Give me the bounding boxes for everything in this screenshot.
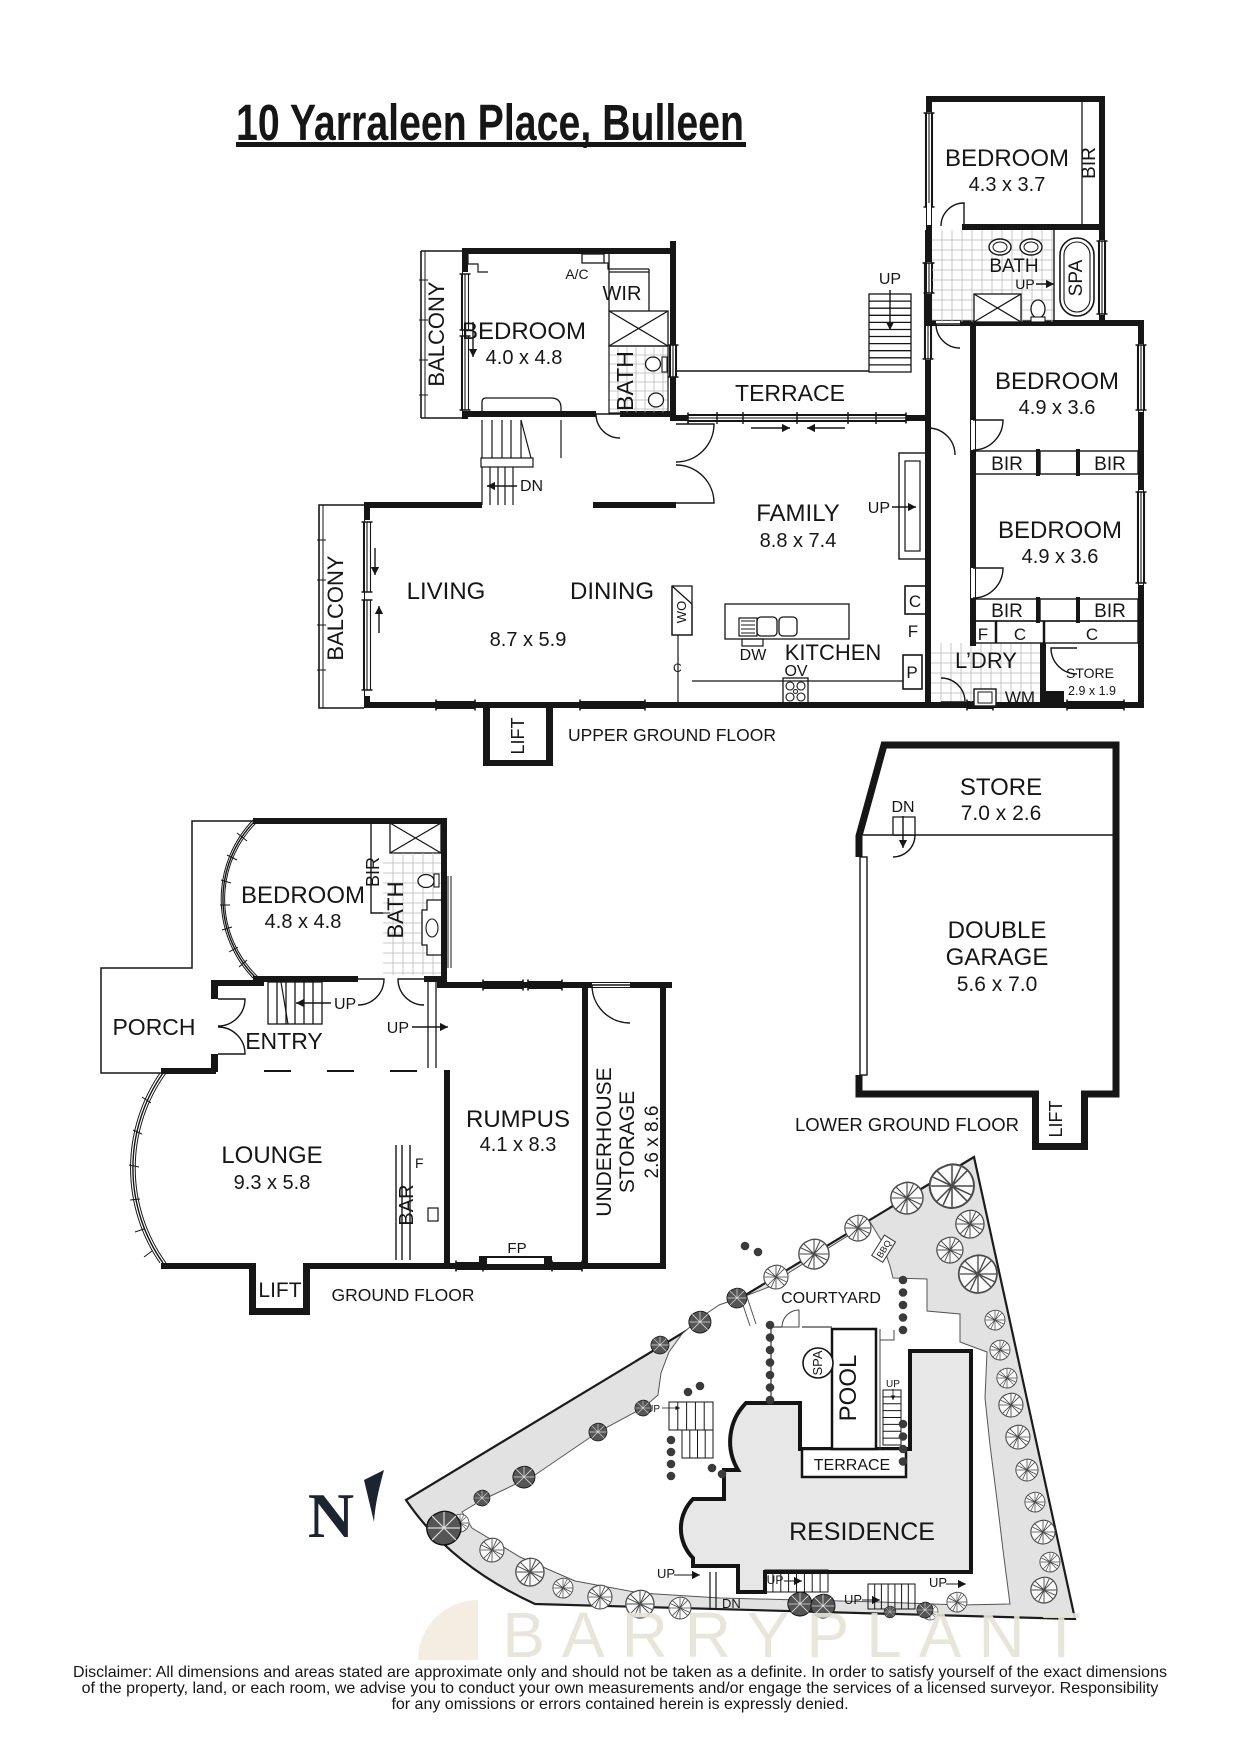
svg-text:BIR: BIR [991, 454, 1023, 475]
svg-text:PORCH: PORCH [112, 1014, 195, 1040]
svg-text:8.7 x 5.9: 8.7 x 5.9 [490, 629, 567, 651]
svg-text:UNDERHOUSE: UNDERHOUSE [593, 1067, 616, 1216]
svg-text:LOUNGE: LOUNGE [221, 1142, 322, 1169]
svg-text:TERRACE: TERRACE [735, 380, 845, 406]
svg-text:RESIDENCE: RESIDENCE [789, 1518, 935, 1546]
svg-text:4.0 x 4.8: 4.0 x 4.8 [486, 347, 563, 369]
svg-text:DN: DN [891, 799, 914, 816]
svg-text:BATH: BATH [989, 256, 1038, 277]
svg-text:BEDROOM: BEDROOM [998, 517, 1122, 544]
svg-text:BALCONY: BALCONY [323, 555, 348, 660]
svg-text:UP: UP [879, 271, 901, 288]
svg-text:Disclaimer: All dimensions and: Disclaimer: All dimensions and areas sta… [73, 1664, 1167, 1681]
svg-text:WIR: WIR [603, 283, 642, 305]
svg-text:C: C [673, 661, 682, 675]
svg-text:RUMPUS: RUMPUS [466, 1106, 570, 1133]
svg-text:UP: UP [1015, 276, 1034, 292]
svg-text:SPA: SPA [810, 1350, 825, 1375]
svg-text:8.8 x 7.4: 8.8 x 7.4 [760, 530, 837, 552]
svg-text:BIR: BIR [1079, 147, 1100, 179]
svg-text:A/C: A/C [565, 266, 588, 282]
svg-text:UP: UP [387, 1020, 409, 1037]
svg-text:for any omissions or errors co: for any omissions or errors contained he… [391, 1696, 848, 1713]
svg-text:DINING: DINING [570, 578, 654, 605]
svg-text:BIR: BIR [1094, 454, 1126, 475]
svg-text:4.1 x 8.3: 4.1 x 8.3 [480, 1134, 557, 1156]
svg-text:WM: WM [1005, 688, 1035, 707]
svg-text:BIR: BIR [991, 601, 1023, 622]
svg-text:STORAGE: STORAGE [616, 1091, 639, 1193]
svg-text:DOUBLE: DOUBLE [948, 917, 1047, 944]
svg-text:4.8 x 4.8: 4.8 x 4.8 [265, 911, 342, 933]
svg-text:LIFT: LIFT [508, 717, 528, 754]
svg-text:STORE: STORE [1066, 665, 1114, 681]
svg-text:UP: UP [657, 1566, 675, 1581]
svg-text:7.0 x 2.6: 7.0 x 2.6 [961, 802, 1042, 825]
svg-text:POOL: POOL [835, 1355, 862, 1422]
svg-text:LIFT: LIFT [258, 1279, 301, 1302]
svg-text:UPPER GROUND FLOOR: UPPER GROUND FLOOR [568, 725, 776, 745]
svg-text:LIFT: LIFT [1046, 1100, 1066, 1137]
svg-text:BATH: BATH [612, 351, 638, 411]
svg-text:TERRACE: TERRACE [814, 1457, 890, 1474]
svg-text:WO: WO [674, 601, 689, 623]
svg-text:LOWER GROUND FLOOR: LOWER GROUND FLOOR [795, 1114, 1019, 1135]
svg-text:FAMILY: FAMILY [756, 500, 840, 527]
svg-text:4.9 x 3.6: 4.9 x 3.6 [1022, 546, 1099, 568]
svg-text:UP: UP [334, 996, 356, 1013]
svg-text:of the property, land, or each: of the property, land, or each room, we … [82, 1680, 1159, 1697]
svg-text:GROUND FLOOR: GROUND FLOOR [332, 1285, 475, 1305]
svg-text:C: C [1086, 625, 1098, 644]
svg-text:LIVING: LIVING [407, 578, 486, 605]
svg-text:C: C [1014, 625, 1026, 644]
svg-text:2.9 x 1.9: 2.9 x 1.9 [1068, 684, 1116, 698]
svg-text:L’DRY: L’DRY [955, 648, 1017, 673]
svg-text:BARRYPLANT: BARRYPLANT [502, 1599, 1098, 1671]
svg-text:F: F [415, 1155, 424, 1171]
svg-text:COURTYARD: COURTYARD [781, 1290, 881, 1307]
svg-text:KITCHEN: KITCHEN [785, 640, 882, 665]
svg-text:STORE: STORE [960, 774, 1042, 801]
svg-text:BEDROOM: BEDROOM [462, 318, 586, 345]
svg-text:UP: UP [767, 1573, 784, 1587]
svg-text:DW: DW [740, 647, 768, 664]
svg-text:N: N [308, 1480, 354, 1551]
svg-text:F: F [908, 622, 918, 641]
svg-text:BEDROOM: BEDROOM [241, 882, 365, 909]
svg-text:FP: FP [507, 1240, 526, 1257]
svg-text:BAR: BAR [396, 1184, 418, 1225]
svg-text:4.9 x 3.6: 4.9 x 3.6 [1019, 397, 1096, 419]
svg-text:BEDROOM: BEDROOM [945, 145, 1069, 172]
svg-text:BEDROOM: BEDROOM [995, 368, 1119, 395]
svg-text:P: P [906, 663, 917, 682]
svg-text:2.6 x 8.6: 2.6 x 8.6 [642, 1106, 663, 1179]
svg-text:BALCONY: BALCONY [424, 281, 449, 386]
svg-text:UP: UP [886, 1379, 900, 1390]
svg-text:SPA: SPA [1066, 259, 1087, 296]
svg-text:ENTRY: ENTRY [245, 1028, 323, 1054]
svg-text:BIR: BIR [363, 857, 383, 887]
svg-text:4.3 x 3.7: 4.3 x 3.7 [969, 174, 1046, 196]
svg-text:UP: UP [868, 500, 890, 517]
svg-text:5.6 x 7.0: 5.6 x 7.0 [957, 973, 1038, 996]
svg-text:F: F [978, 625, 988, 644]
svg-text:UP: UP [929, 1575, 947, 1590]
svg-text:BATH: BATH [383, 881, 408, 938]
svg-text:C: C [909, 592, 921, 611]
svg-text:BIR: BIR [1094, 601, 1126, 622]
svg-text:DN: DN [520, 478, 543, 495]
svg-text:GARAGE: GARAGE [946, 944, 1049, 971]
svg-text:9.3 x 5.8: 9.3 x 5.8 [234, 1172, 311, 1194]
